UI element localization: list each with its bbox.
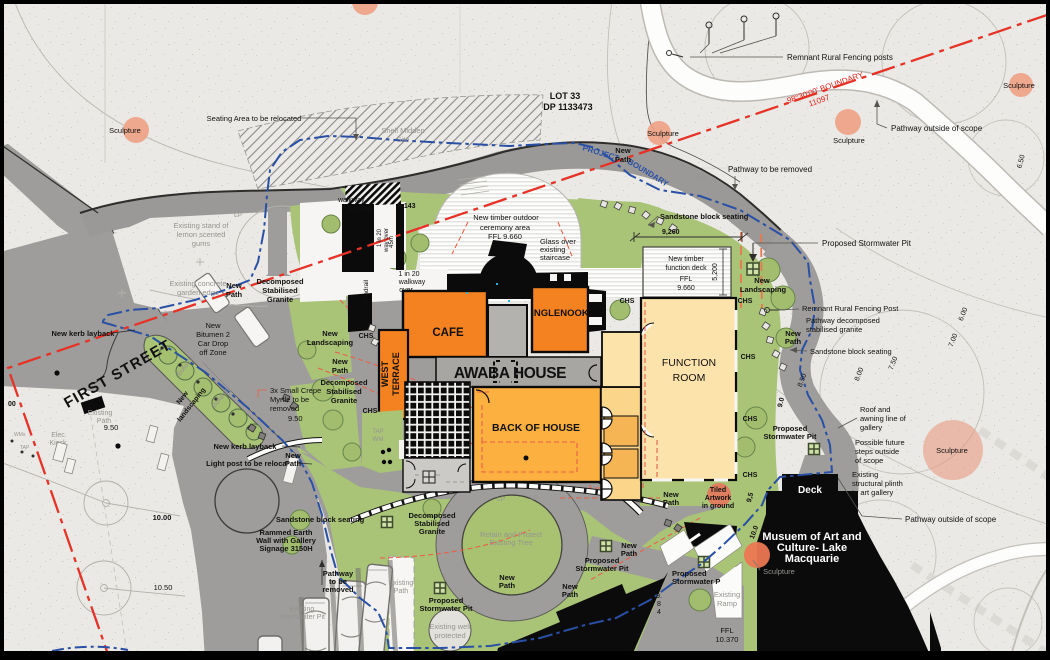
svg-text:Granite: Granite <box>419 527 445 536</box>
svg-text:New: New <box>205 321 221 330</box>
svg-text:Artwork: Artwork <box>705 495 732 502</box>
svg-text:1 in 20: 1 in 20 <box>377 228 383 247</box>
svg-text:CAFE: CAFE <box>432 327 464 339</box>
svg-text:Pathway to be removed: Pathway to be removed <box>728 165 812 174</box>
svg-text:5,200: 5,200 <box>712 263 719 281</box>
svg-text:removed: removed <box>270 404 299 413</box>
svg-text:Landscaping: Landscaping <box>307 338 354 347</box>
svg-text:CHS: CHS <box>363 408 378 415</box>
svg-text:garden edge: garden edge <box>177 288 219 297</box>
svg-text:Stormwater Pit: Stormwater Pit <box>576 564 629 573</box>
svg-text:Possible future: Possible future <box>855 438 905 447</box>
svg-text:staircase: staircase <box>540 253 570 262</box>
svg-text:Path: Path <box>621 549 638 558</box>
svg-text:off Zone: off Zone <box>199 348 226 357</box>
svg-text:DP 1133473: DP 1133473 <box>543 102 592 112</box>
svg-text:Myrtle to be: Myrtle to be <box>270 395 309 404</box>
svg-text:Path: Path <box>394 588 409 595</box>
svg-text:gums: gums <box>192 239 211 248</box>
svg-text:Pathway outside of scope: Pathway outside of scope <box>905 515 997 524</box>
svg-text:3x Small Crepe: 3x Small Crepe <box>270 386 321 395</box>
svg-text:function deck: function deck <box>665 265 707 272</box>
svg-text:walkway: walkway <box>337 197 365 204</box>
svg-text:Path: Path <box>562 590 579 599</box>
svg-text:New: New <box>615 146 631 155</box>
svg-text:Existing: Existing <box>389 580 414 587</box>
svg-text:Stabilised: Stabilised <box>326 387 362 396</box>
svg-text:stabilised granite: stabilised granite <box>806 325 862 334</box>
svg-text:Existing stand of: Existing stand of <box>173 221 229 230</box>
svg-text:TERRACE: TERRACE <box>391 352 401 396</box>
svg-text:Sculpture: Sculpture <box>109 126 141 135</box>
svg-text:Stormwater P: Stormwater P <box>672 577 720 586</box>
svg-text:8: 8 <box>657 601 661 608</box>
svg-text:ROOM: ROOM <box>673 372 706 384</box>
svg-text:Sculpture: Sculpture <box>1003 81 1035 90</box>
svg-text:4: 4 <box>657 609 661 616</box>
svg-text:Shell Midden: Shell Midden <box>381 126 424 135</box>
svg-text:structural plinth: structural plinth <box>852 479 903 488</box>
svg-text:CHS: CHS <box>359 333 374 340</box>
svg-text:Stormwater Pit: Stormwater Pit <box>764 432 817 441</box>
svg-text:CHS: CHS <box>738 298 753 305</box>
svg-text:00: 00 <box>8 401 16 408</box>
svg-text:Pathway decomposed: Pathway decomposed <box>806 316 880 325</box>
svg-text:10.50: 10.50 <box>154 583 173 592</box>
svg-text:New: New <box>322 329 338 338</box>
svg-text:Sculpture: Sculpture <box>647 129 679 138</box>
svg-text:Existing concrete: Existing concrete <box>169 279 226 288</box>
svg-text:Landscaping: Landscaping <box>740 285 787 294</box>
svg-text:steps outside: steps outside <box>855 447 899 456</box>
svg-text:lemon scented: lemon scented <box>177 230 226 239</box>
svg-text:10.370: 10.370 <box>716 635 739 644</box>
svg-text:over: over <box>399 287 413 294</box>
svg-text:Granite: Granite <box>331 396 357 405</box>
svg-text:New timber: New timber <box>668 256 704 263</box>
svg-text:Tiled: Tiled <box>710 487 726 494</box>
svg-text:Remnant Rural Fencing Post: Remnant Rural Fencing Post <box>802 304 899 313</box>
svg-text:LOT 33: LOT 33 <box>550 91 581 101</box>
svg-text:CHS: CHS <box>620 298 635 305</box>
svg-text:Stabilised: Stabilised <box>262 286 298 295</box>
svg-text:LP: LP <box>497 496 505 503</box>
svg-text:FFL 9.660: FFL 9.660 <box>488 232 522 241</box>
svg-text:Stormwater Pit: Stormwater Pit <box>420 604 473 613</box>
svg-text:New kerb layback: New kerb layback <box>214 442 278 451</box>
svg-text:Macquarie: Macquarie <box>785 553 839 565</box>
svg-text:Path: Path <box>285 459 302 468</box>
svg-text:Elec: Elec <box>51 432 65 439</box>
svg-text:Granite: Granite <box>267 295 293 304</box>
svg-text:Car Drop: Car Drop <box>198 339 228 348</box>
svg-text:Pathway outside of scope: Pathway outside of scope <box>891 124 983 133</box>
svg-text:Path: Path <box>499 581 516 590</box>
svg-text:Path: Path <box>97 418 112 425</box>
svg-text:Stormwater Pit: Stormwater Pit <box>279 614 325 621</box>
svg-text:10.00: 10.00 <box>153 513 172 522</box>
svg-text:9.50: 9.50 <box>288 414 303 423</box>
svg-text:TAP: TAP <box>372 429 383 435</box>
svg-text:Decomposed: Decomposed <box>320 378 368 387</box>
svg-text:1 in 20: 1 in 20 <box>398 271 419 278</box>
svg-text:CHS: CHS <box>741 354 756 361</box>
svg-text:LP: LP <box>697 175 705 182</box>
svg-text:Path: Path <box>226 290 243 299</box>
svg-text:TAP: TAP <box>20 445 30 451</box>
svg-text:Deck: Deck <box>798 485 822 496</box>
svg-text:Seating Area to be relocated: Seating Area to be relocated <box>207 114 302 123</box>
svg-text:Path: Path <box>663 498 680 507</box>
svg-text:Sculpture: Sculpture <box>763 567 795 576</box>
svg-text:of scope: of scope <box>855 456 883 465</box>
svg-text:removed: removed <box>322 585 354 594</box>
svg-text:Sandstone block seating: Sandstone block seating <box>276 515 365 524</box>
svg-text:New: New <box>332 357 348 366</box>
svg-text:Roof and: Roof and <box>860 405 890 414</box>
svg-text:Proposed Stormwater Pit: Proposed Stormwater Pit <box>822 239 912 248</box>
svg-text:BACK OF HOUSE: BACK OF HOUSE <box>492 422 580 434</box>
svg-text:WMs: WMs <box>14 432 26 438</box>
svg-text:Remnant Rural Fencing posts: Remnant Rural Fencing posts <box>787 53 893 62</box>
svg-text:Existing: Existing <box>290 606 315 613</box>
svg-text:WM: WM <box>373 437 384 443</box>
svg-text:Existing: Existing <box>88 410 113 417</box>
svg-text:LP: LP <box>234 212 242 219</box>
svg-text:Decomposed: Decomposed <box>256 277 304 286</box>
svg-text:WEST: WEST <box>380 360 390 387</box>
svg-text:to art gallery: to art gallery <box>852 488 894 497</box>
svg-text:FUNCTION: FUNCTION <box>662 357 716 369</box>
svg-text:Bitumen 2: Bitumen 2 <box>196 330 230 339</box>
svg-text:Site: Site <box>397 135 410 144</box>
svg-text:New kerb layback: New kerb layback <box>52 329 116 338</box>
svg-text:gallery: gallery <box>860 423 882 432</box>
svg-text:Sandstone block seating: Sandstone block seating <box>810 347 892 356</box>
svg-text:9.: 9. <box>656 593 662 600</box>
svg-text:Sculpture: Sculpture <box>833 136 865 145</box>
svg-text:5.060m: 5.060m <box>348 206 372 213</box>
svg-text:Handrail: Handrail <box>363 279 370 304</box>
svg-text:in ground: in ground <box>702 503 734 510</box>
svg-text:CHS: CHS <box>743 472 758 479</box>
svg-text:awning line of: awning line of <box>860 414 907 423</box>
svg-text:protected: protected <box>434 631 465 640</box>
svg-text:Existing: Existing <box>852 470 878 479</box>
svg-text:Path: Path <box>332 366 349 375</box>
svg-text:INGLENOOK: INGLENOOK <box>531 308 589 319</box>
svg-text:FFL: FFL <box>720 626 733 635</box>
svg-text:New timber outdoor: New timber outdoor <box>473 213 539 222</box>
svg-text:9.660: 9.660 <box>677 285 695 292</box>
svg-text:Sandstone block seating: Sandstone block seating <box>660 212 749 221</box>
svg-text:New: New <box>754 276 770 285</box>
svg-text:Existing: Existing <box>714 590 740 599</box>
svg-text:Ramp: Ramp <box>717 599 737 608</box>
svg-text:Existing well: Existing well <box>429 622 471 631</box>
svg-text:Path: Path <box>785 337 802 346</box>
svg-text:Sculpture: Sculpture <box>936 446 968 455</box>
svg-text:New: New <box>226 281 242 290</box>
svg-text:Existing Tree: Existing Tree <box>489 538 532 547</box>
svg-text:AWABA HOUSE: AWABA HOUSE <box>454 365 566 382</box>
svg-text:Signage 3150H: Signage 3150H <box>259 544 312 553</box>
svg-text:FFL: FFL <box>680 276 693 283</box>
svg-text:LP: LP <box>530 495 538 502</box>
svg-text:9,260: 9,260 <box>662 229 680 236</box>
svg-text:walkway: walkway <box>398 279 426 286</box>
svg-text:ceremony area: ceremony area <box>480 223 531 232</box>
svg-text:CHS: CHS <box>743 416 758 423</box>
svg-text:Path: Path <box>615 155 632 164</box>
svg-text:45m: 45m <box>389 236 395 248</box>
svg-text:9.143: 9.143 <box>398 203 416 210</box>
